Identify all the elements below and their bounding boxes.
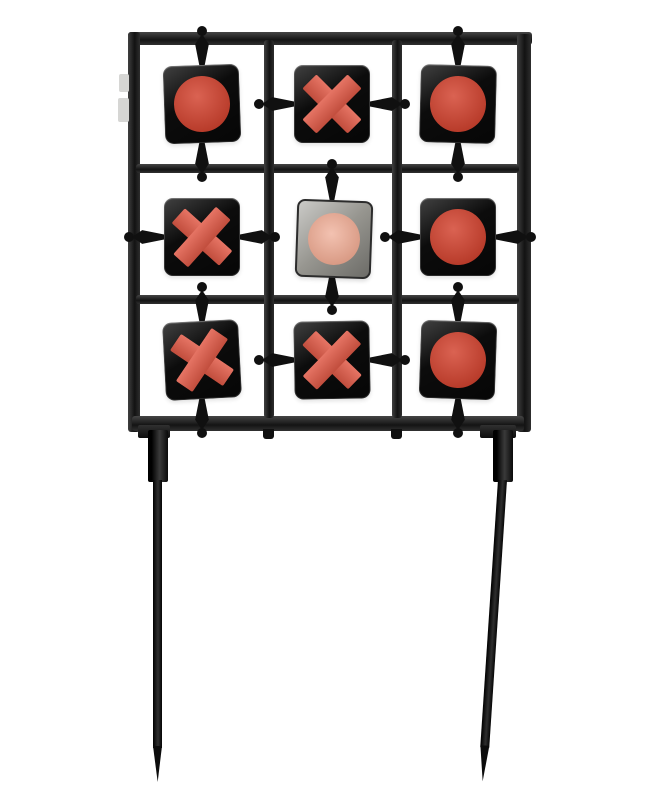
spinner-cell-r3c1	[132, 290, 272, 430]
target-plate-front	[162, 319, 242, 401]
spinner-pivot	[323, 167, 341, 201]
stake-point-tip	[478, 745, 489, 782]
target-plate-front	[294, 65, 370, 143]
flipped-circle-symbol	[307, 212, 361, 266]
frame-rail-stub	[391, 429, 402, 439]
pivot-tip	[197, 428, 207, 438]
stake-rod-shaft	[480, 480, 507, 748]
spinner-pivot	[193, 396, 211, 430]
spinner-pivot	[132, 228, 166, 246]
spinner-cell-r3c2	[262, 290, 402, 430]
target-plate-front	[420, 198, 496, 276]
x-symbol	[163, 321, 240, 398]
target-plate-front	[293, 320, 370, 399]
pivot-tip	[526, 232, 536, 242]
spinner-cell-r1c3	[388, 34, 528, 174]
spinner-pivot	[388, 228, 422, 246]
spinner-pivot	[449, 396, 467, 430]
spinner-cell-r3c3	[388, 290, 528, 430]
spinner-cell-r1c2	[262, 34, 402, 174]
stake-point-tip	[153, 746, 162, 782]
frame-rail-stub	[263, 429, 274, 439]
x-symbol	[299, 71, 365, 137]
target-plate-front	[419, 320, 498, 401]
target-plate-back	[295, 199, 374, 280]
frame-clip	[119, 74, 129, 92]
circle-symbol	[173, 75, 231, 133]
product-photo-spinner-target	[0, 0, 667, 804]
circle-symbol	[429, 331, 487, 389]
pivot-tip	[453, 428, 463, 438]
stake-rod-shaft	[153, 480, 162, 748]
spinner-pivot	[193, 290, 211, 324]
spinner-pivot	[449, 290, 467, 324]
spinner-pivot	[193, 34, 211, 68]
spinner-pivot	[262, 95, 296, 113]
circle-symbol	[429, 75, 486, 132]
stake-rod	[478, 480, 507, 784]
target-plate-front	[163, 64, 242, 145]
stake-sleeve	[148, 430, 168, 482]
spinner-pivot	[494, 228, 528, 246]
target-plate-front	[164, 198, 240, 276]
stake-rod	[153, 480, 162, 784]
spinner-pivot	[262, 351, 296, 369]
spinner-cell-r1c1	[132, 34, 272, 174]
circle-symbol	[430, 209, 486, 265]
x-symbol	[167, 202, 236, 271]
x-symbol	[298, 326, 365, 393]
target-plate-front	[419, 64, 497, 144]
frame-clip	[118, 98, 129, 122]
stake-sleeve	[493, 430, 513, 482]
spinner-pivot	[449, 34, 467, 68]
